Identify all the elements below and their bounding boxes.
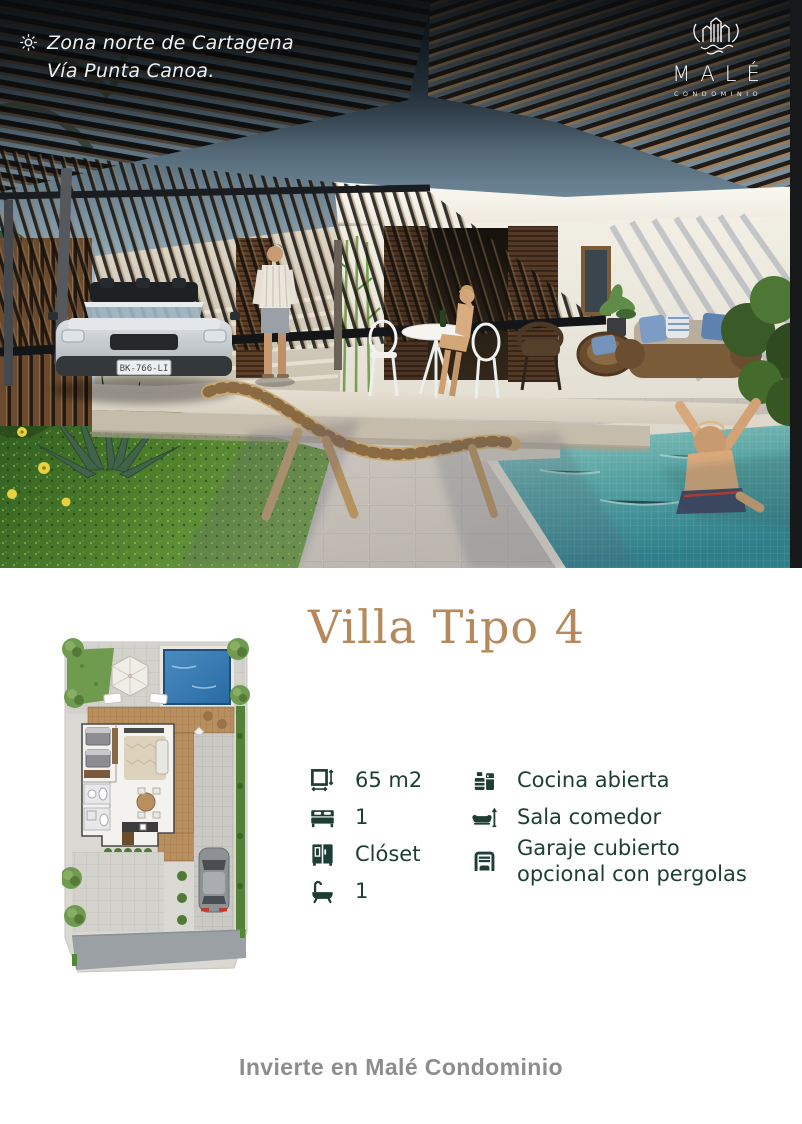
feature-label: 65 m2 — [355, 768, 422, 794]
unit-title: Villa Tipo 4 — [308, 600, 585, 654]
floor-plan — [62, 636, 250, 976]
location-line-1: Zona norte de Cartagena — [47, 30, 294, 58]
kitchen-icon — [470, 767, 498, 795]
sofa-icon — [470, 804, 498, 832]
hero-photo: BK-766-LI — [0, 0, 802, 568]
feature-label: 1 — [355, 805, 368, 831]
feature-area: 65 m2 — [308, 762, 458, 799]
feature-label: Clóset — [355, 842, 420, 868]
feature-bathrooms: 1 — [308, 873, 458, 910]
feature-living-dining: Sala comedor — [470, 799, 770, 836]
feature-kitchen: Cocina abierta — [470, 762, 770, 799]
garage-icon — [470, 848, 498, 876]
feature-label: Garaje cubierto opcional con pergolas — [517, 836, 752, 887]
info-sheet: Villa Tipo 4 65 m2 — [0, 568, 802, 1124]
license-plate: BK-766-LI — [120, 364, 169, 374]
feature-bedrooms: 1 — [308, 799, 458, 836]
feature-garage: Garaje cubierto opcional con pergolas — [470, 836, 770, 887]
right-dark-strip — [790, 0, 802, 568]
brand-name: MALÉ — [660, 62, 782, 86]
area-icon — [308, 767, 336, 795]
footer-cta: Invierte en Malé Condominio — [0, 1054, 802, 1081]
closet-icon — [308, 841, 336, 869]
location-line-2: Vía Punta Canoa. — [47, 58, 294, 86]
feature-label: Cocina abierta — [517, 768, 669, 794]
bath-icon — [308, 878, 336, 906]
brand-logo: MALÉ CONDOMINIO — [650, 12, 782, 98]
sun-icon — [20, 34, 37, 51]
male-logo-mark — [683, 12, 749, 60]
feature-closet: Clóset — [308, 836, 458, 873]
bed-icon — [308, 804, 336, 832]
brand-subtitle: CONDOMINIO — [654, 90, 782, 98]
location-caption: Zona norte de Cartagena Vía Punta Canoa. — [20, 30, 294, 85]
feature-label: 1 — [355, 879, 368, 905]
feature-label: Sala comedor — [517, 805, 661, 831]
